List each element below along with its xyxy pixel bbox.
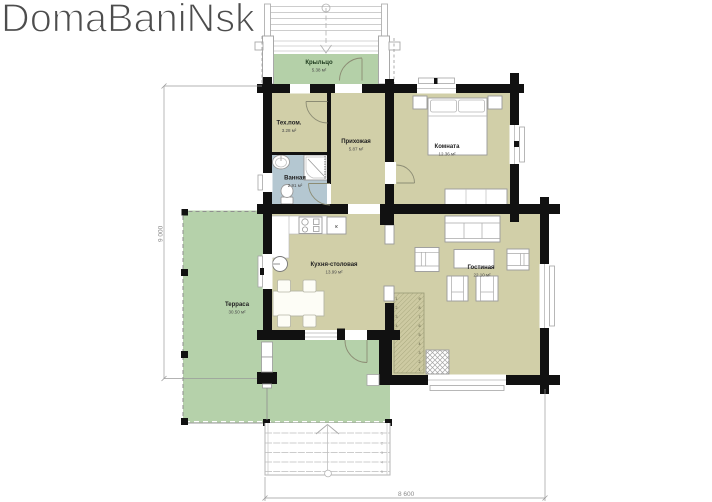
svg-text:Гостиная: Гостиная: [467, 265, 495, 271]
svg-text:13.99 м²: 13.99 м²: [325, 270, 343, 275]
svg-text:30.50 м²: 30.50 м²: [228, 310, 246, 315]
svg-text:1: 1: [396, 297, 398, 301]
svg-text:5.38 м²: 5.38 м²: [312, 68, 327, 73]
svg-text:1: 1: [381, 432, 383, 436]
svg-text:8 600: 8 600: [398, 491, 415, 498]
svg-text:2: 2: [381, 442, 383, 446]
svg-text:Кухня-столовая: Кухня-столовая: [310, 262, 358, 268]
svg-text:Терраса: Терраса: [225, 302, 250, 308]
svg-text:1: 1: [419, 368, 421, 372]
svg-text:Ванная: Ванная: [284, 176, 306, 182]
svg-text:6: 6: [419, 324, 421, 328]
svg-text:5.87 м²: 5.87 м²: [349, 147, 364, 152]
svg-text:DomaBaniNsk: DomaBaniNsk: [1, 0, 256, 41]
svg-text:2: 2: [419, 360, 421, 364]
svg-text:4: 4: [396, 324, 398, 328]
svg-text:3: 3: [381, 451, 383, 455]
svg-text:7: 7: [419, 315, 421, 319]
svg-text:4: 4: [381, 461, 383, 465]
svg-text:9 000: 9 000: [158, 225, 165, 242]
svg-text:3: 3: [419, 351, 421, 355]
svg-text:Крыльцо: Крыльцо: [305, 60, 333, 66]
svg-text:3.28 м²: 3.28 м²: [282, 128, 297, 133]
svg-text:Прихожая: Прихожая: [341, 139, 371, 145]
svg-text:4: 4: [419, 342, 421, 346]
svg-text:2.91 м²: 2.91 м²: [288, 183, 303, 188]
svg-text:Комната: Комната: [435, 144, 461, 150]
svg-text:2: 2: [396, 306, 398, 310]
svg-text:3: 3: [396, 315, 398, 319]
svg-text:Тех.пом.: Тех.пом.: [277, 121, 302, 127]
svg-text:5: 5: [419, 333, 421, 337]
svg-text:5: 5: [381, 470, 383, 474]
svg-text:9: 9: [419, 297, 421, 301]
svg-text:12.36 м²: 12.36 м²: [438, 152, 456, 157]
svg-text:22.10 м²: 22.10 м²: [473, 273, 491, 278]
svg-text:8: 8: [419, 306, 421, 310]
